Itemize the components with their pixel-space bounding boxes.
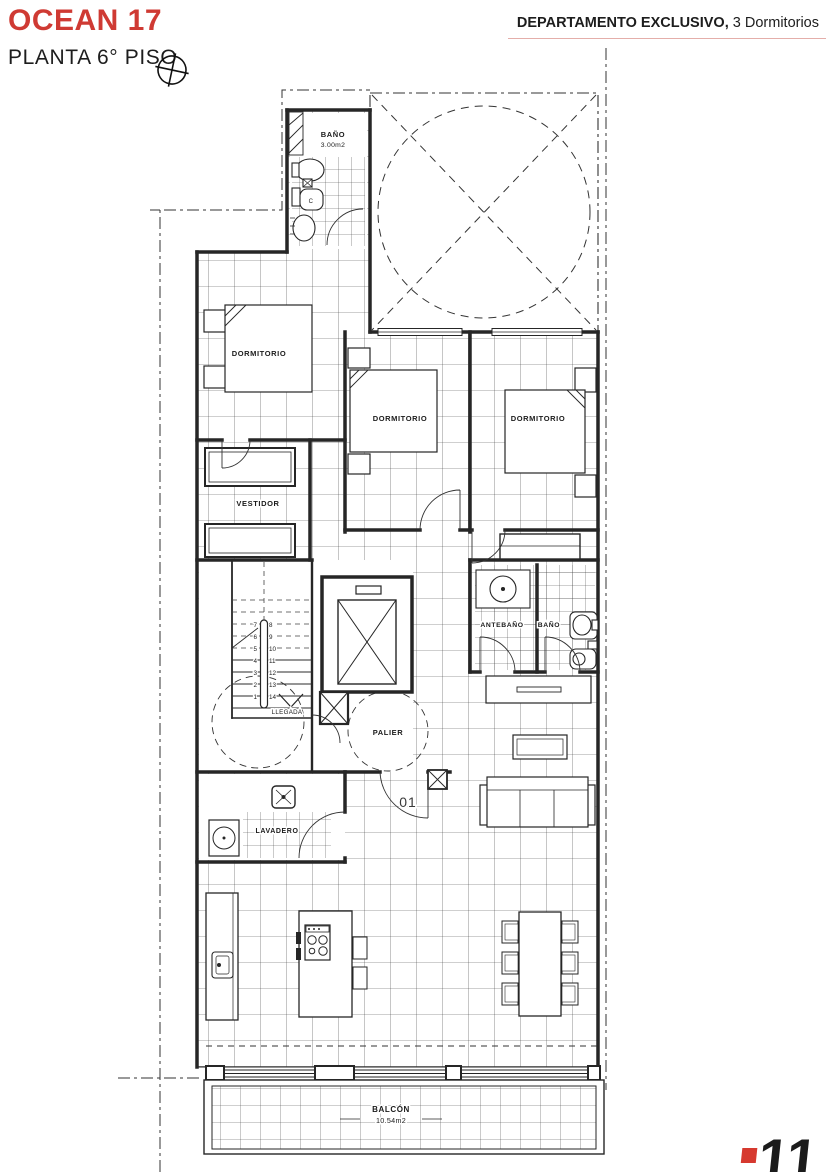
room-label-lavadero: LAVADERO — [255, 828, 298, 835]
room-label-vestidor: VESTIDOR — [236, 499, 279, 508]
stair-num: 6 — [253, 634, 257, 641]
floorplan-page: OCEAN 17 PLANTA 6° PISO DEPARTAMENTO EXC… — [0, 0, 826, 1172]
brand-logo: 11 — [738, 1127, 821, 1172]
stair-landing-label: LLEGADA — [272, 709, 303, 716]
stair-num: 13 — [269, 682, 277, 689]
stair-num: 1 — [253, 694, 257, 701]
sofa — [480, 777, 595, 827]
stair-num: 11 — [269, 658, 276, 665]
stair-num: 14 — [269, 694, 277, 701]
room-label-bano-top: BAÑO — [321, 130, 345, 139]
kitchen-counter — [206, 893, 238, 1020]
toilet-tag: C — [309, 199, 314, 205]
hatched-pier — [289, 112, 303, 155]
unit-number: 01 — [399, 794, 417, 810]
coffee-table — [513, 735, 567, 759]
stair-num: 8 — [269, 622, 273, 629]
room-label-palier: PALIER — [373, 728, 404, 737]
stair-num: 12 — [269, 670, 277, 677]
stove-icon — [305, 925, 330, 960]
room-label-dormitorio-1: DORMITORIO — [232, 349, 287, 358]
hall-cabinet — [486, 676, 591, 703]
stair-num: 7 — [253, 622, 257, 629]
room-label-antebano: ANTEBAÑO — [480, 620, 523, 629]
room-area-bano-top: 3.00m2 — [321, 142, 345, 149]
stair-num: 4 — [253, 658, 257, 665]
dining-set — [502, 912, 578, 1016]
room-label-dormitorio-3: DORMITORIO — [511, 414, 566, 423]
stair-num: 5 — [253, 646, 257, 653]
stair-num: 2 — [253, 682, 257, 689]
room-label-bano: BAÑO — [538, 620, 560, 629]
stair-num: 10 — [269, 646, 277, 653]
entry-duct — [428, 770, 447, 789]
room-area-balcon: 10.54m2 — [376, 1116, 406, 1125]
stair-num: 9 — [269, 634, 273, 641]
floor-plan-drawing: 7 6 5 4 3 2 1 8 9 10 11 12 13 14 — [0, 0, 826, 1172]
logo-dot — [741, 1148, 758, 1163]
terrace-void — [370, 93, 598, 332]
room-label-dormitorio-2: DORMITORIO — [373, 414, 428, 423]
logo-digits: 11 — [755, 1127, 821, 1172]
room-label-balcon: BALCÓN — [372, 1105, 410, 1114]
stair-num: 3 — [253, 670, 257, 677]
